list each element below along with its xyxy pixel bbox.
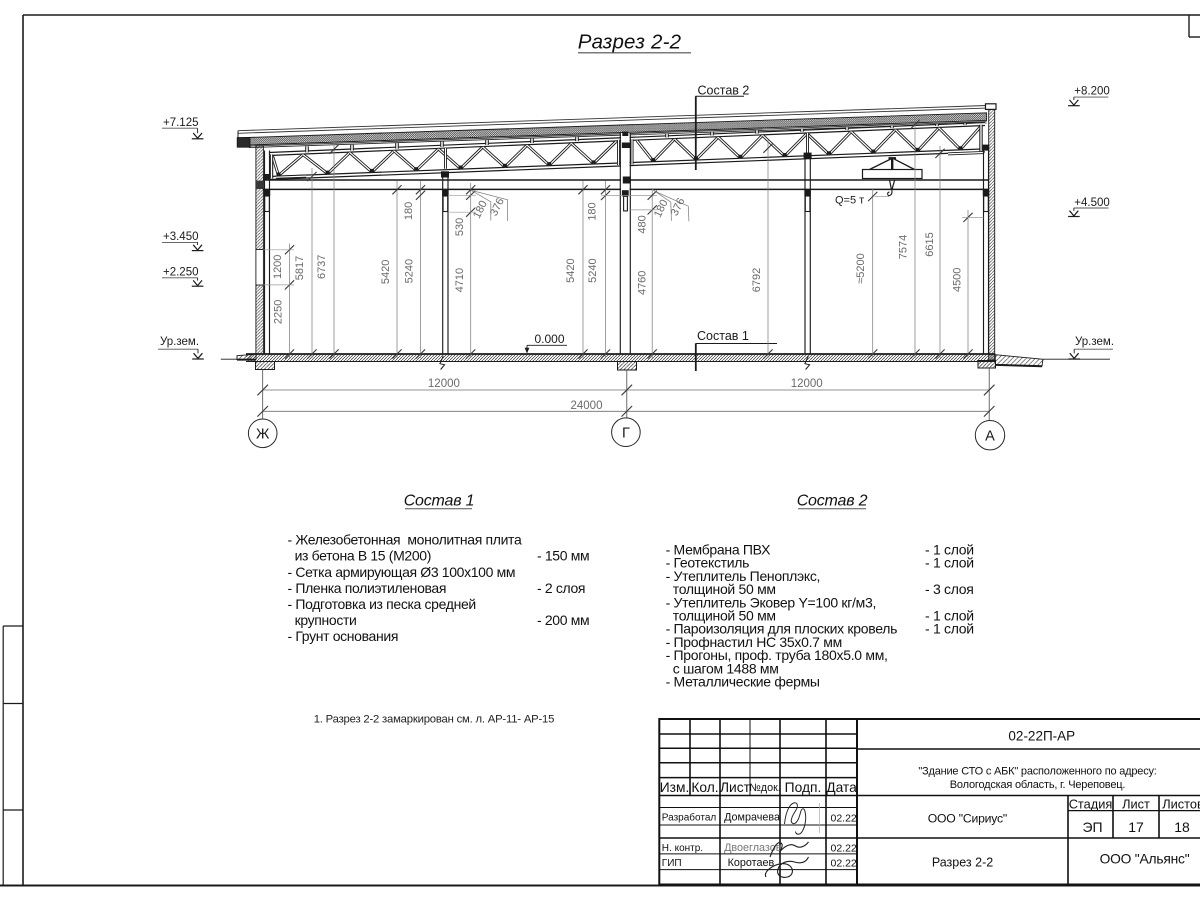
svg-text:Изм.: Изм. [660,780,690,795]
svg-text:Двоеглазов: Двоеглазов [724,842,782,854]
svg-text:Ур.зем.: Ур.зем. [160,336,199,348]
svg-text:- 1 слой: - 1 слой [925,621,974,637]
svg-text:Лист: Лист [720,780,751,795]
svg-text:Г: Г [622,426,630,442]
svg-text:"Здание СТО с АБК" расположенн: "Здание СТО с АБК" расположенного по адр… [918,766,1156,778]
svg-text:- Металлические фермы: - Металлические фермы [666,674,820,690]
svg-text:- 1 слой: - 1 слой [925,555,974,571]
svg-text:Разрез 2-2: Разрез 2-2 [578,31,682,54]
svg-text:5240: 5240 [587,258,599,282]
svg-text:7574: 7574 [898,235,910,259]
svg-text:ЭП: ЭП [1082,819,1102,835]
svg-text:2250: 2250 [272,300,284,324]
svg-text:- Железобетонная монолитная п: - Железобетонная монолитная плита [288,532,522,548]
svg-text:Состав 2: Состав 2 [698,84,750,98]
svg-text:Коротаев: Коротаев [728,857,775,869]
svg-text:0.000: 0.000 [535,332,565,346]
svg-text:Состав 1: Состав 1 [697,329,749,343]
svg-text:Ж: Ж [256,427,270,443]
svg-text:02-22П-АР: 02-22П-АР [1008,728,1075,743]
svg-text:+2.250: +2.250 [163,267,199,279]
svg-text:Лист: Лист [1122,797,1150,812]
svg-text:480: 480 [637,215,649,233]
svg-text:Кол.: Кол. [691,780,718,795]
svg-text:+4.500: +4.500 [1074,197,1110,209]
svg-text:24000: 24000 [571,400,603,412]
svg-text:Подп.: Подп. [785,780,822,795]
svg-text:6615: 6615 [924,232,936,256]
svg-text:Разработал: Разработал [662,812,717,824]
svg-text:- 2 слоя: - 2 слоя [537,580,585,596]
svg-text:5420: 5420 [565,258,577,282]
svg-text:Стадия: Стадия [1069,797,1113,812]
svg-text:1200: 1200 [272,255,284,279]
svg-text:- 3 слоя: - 3 слоя [925,581,974,597]
svg-text:Домрачева: Домрачева [724,812,780,824]
svg-text:Состав 2: Состав 2 [797,493,868,510]
svg-text:Ур.зем.: Ур.зем. [1075,336,1114,348]
svg-text:17: 17 [1128,819,1144,835]
svg-text:Листов: Листов [1162,797,1200,812]
svg-text:ООО "Сириус": ООО "Сириус" [928,812,1007,826]
svg-text:А: А [985,429,995,445]
svg-text:4760: 4760 [637,271,649,295]
svg-text:02.22: 02.22 [831,813,857,825]
svg-text:5817: 5817 [294,256,306,280]
svg-text:12000: 12000 [428,378,460,390]
svg-text:1. Разрез 2-2 замаркирован см.: 1. Разрез 2-2 замаркирован см. л. АР-11-… [314,714,555,726]
svg-text:- 200 мм: - 200 мм [537,612,589,628]
svg-text:- Подготовка из песка средней: - Подготовка из песка средней [288,596,476,612]
svg-text:из бетона В 15 (М200): из бетона В 15 (М200) [288,548,432,564]
svg-text:6737: 6737 [316,255,328,279]
svg-text:18: 18 [1174,819,1190,835]
svg-text:+8.200: +8.200 [1074,86,1110,98]
svg-text:≈5200: ≈5200 [855,253,867,284]
svg-text:4500: 4500 [951,268,963,292]
svg-text:+7.125: +7.125 [163,117,199,129]
svg-text:Вологодская область, г. Черепо: Вологодская область, г. Череповец. [950,779,1126,791]
svg-text:5420: 5420 [380,260,392,284]
svg-text:530: 530 [454,218,466,236]
svg-text:02.22: 02.22 [831,857,857,869]
svg-text:4710: 4710 [454,268,466,292]
svg-text:Состав 1: Состав 1 [404,493,475,510]
svg-text:180: 180 [403,202,415,220]
svg-text:крупности: крупности [288,612,357,628]
svg-text:+3.450: +3.450 [163,231,199,243]
svg-text:180: 180 [586,202,598,220]
svg-text:ГИП: ГИП [662,858,682,869]
svg-text:- Грунт основания: - Грунт основания [288,628,399,644]
svg-text:№док.: №док. [749,782,781,794]
svg-text:Дата: Дата [826,780,857,795]
svg-text:Q=5 т: Q=5 т [835,195,864,207]
svg-text:02.22: 02.22 [831,842,857,854]
svg-text:5240: 5240 [403,259,415,283]
svg-text:6792: 6792 [751,268,763,292]
svg-text:ООО "Альянс": ООО "Альянс" [1100,852,1190,867]
svg-text:- Сетка армирующая Ø3 100х100: - Сетка армирующая Ø3 100х100 мм [288,564,516,580]
svg-text:12000: 12000 [791,378,823,390]
svg-text:- 150 мм: - 150 мм [537,548,589,564]
svg-text:Разрез 2-2: Разрез 2-2 [932,856,993,870]
svg-text:- Пленка полиэтиленовая: - Пленка полиэтиленовая [288,580,447,596]
svg-text:Н. контр.: Н. контр. [662,843,703,854]
